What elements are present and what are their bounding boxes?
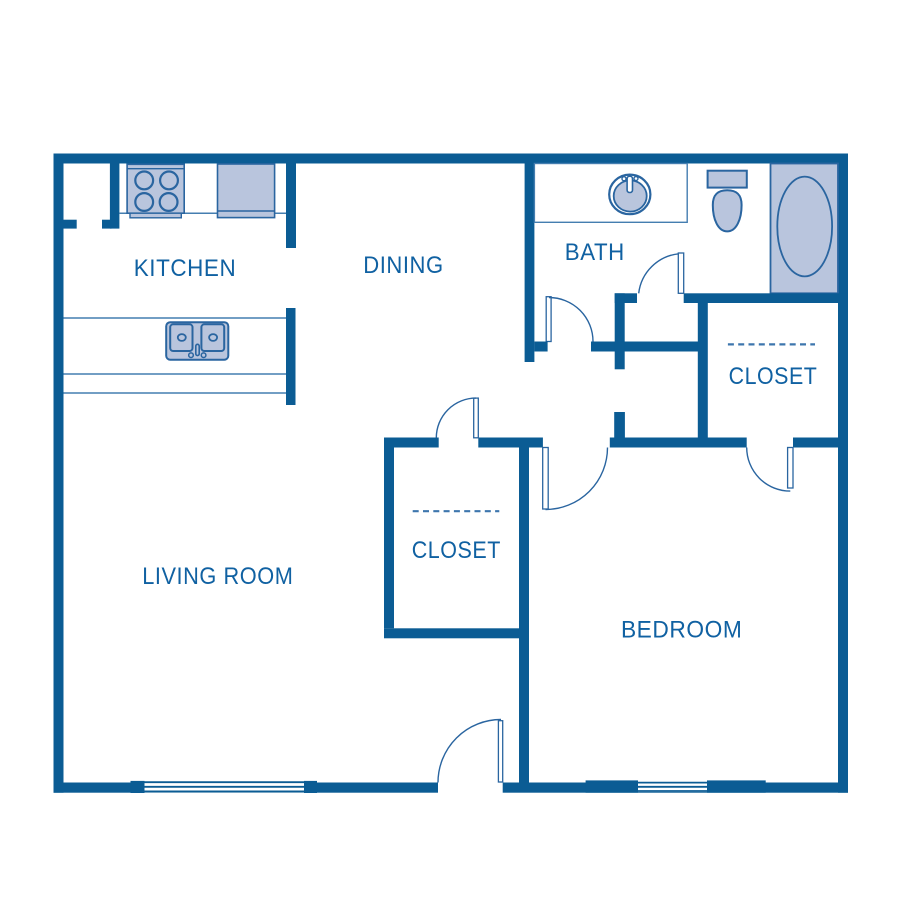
svg-text:CLOSET: CLOSET — [729, 363, 818, 390]
svg-text:DINING: DINING — [363, 252, 444, 279]
svg-text:BATH: BATH — [565, 239, 625, 266]
svg-text:LIVING ROOM: LIVING ROOM — [142, 563, 293, 590]
svg-text:BEDROOM: BEDROOM — [621, 617, 743, 644]
svg-text:KITCHEN: KITCHEN — [134, 255, 237, 282]
svg-text:CLOSET: CLOSET — [412, 537, 501, 564]
